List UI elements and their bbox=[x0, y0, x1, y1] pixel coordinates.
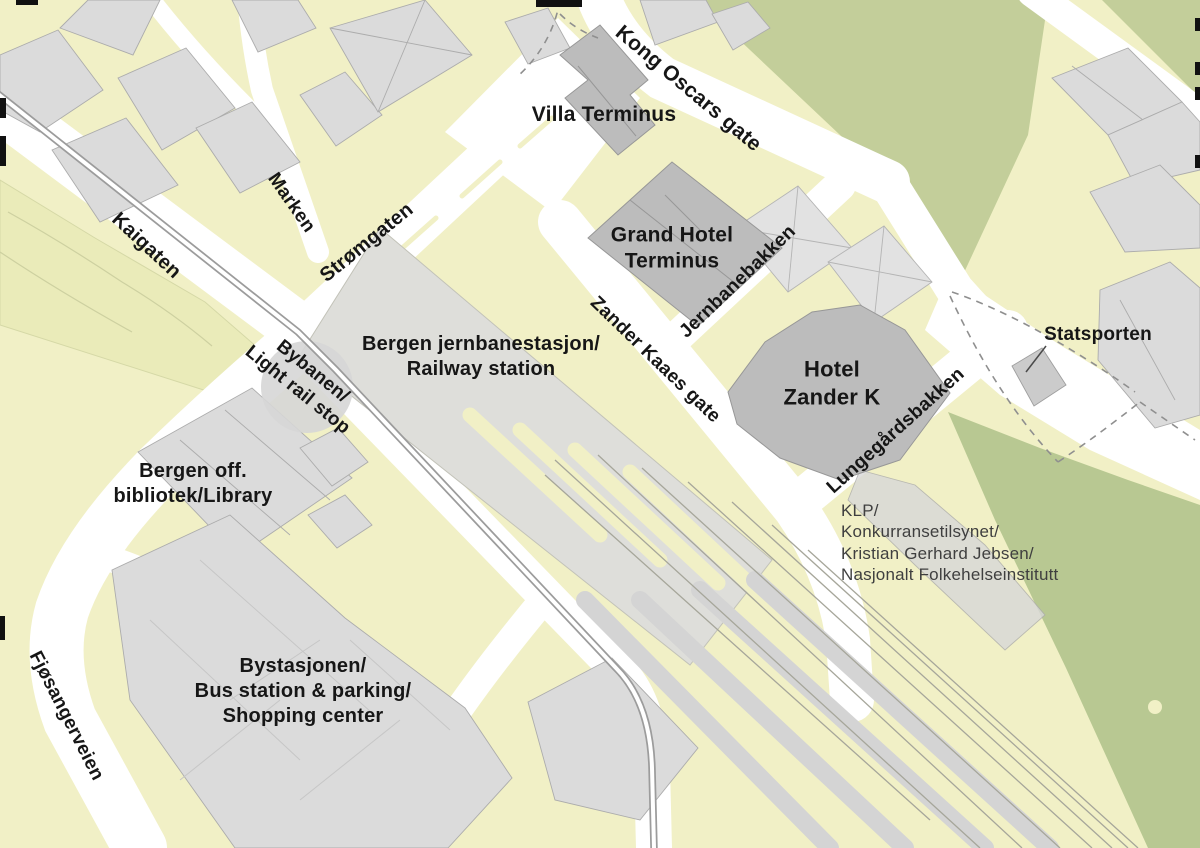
light-rail-stop-circle bbox=[261, 341, 353, 433]
bergen-station-map: Villa TerminusKong Oscars gateGrand Hote… bbox=[0, 0, 1200, 848]
map-canvas bbox=[0, 0, 1200, 848]
